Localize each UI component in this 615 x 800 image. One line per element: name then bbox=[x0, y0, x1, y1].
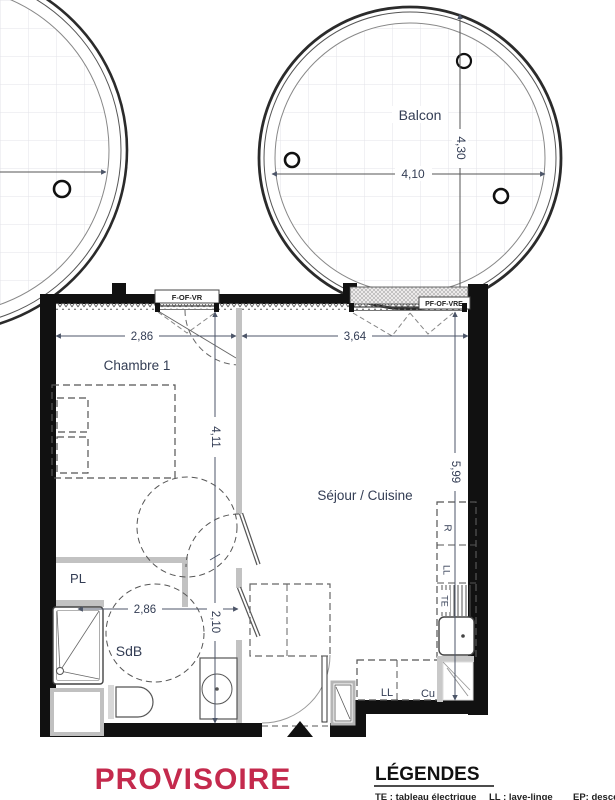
legend-item-ll: LL : lave-linge bbox=[489, 792, 553, 800]
dim-sejour-depth-label: 5,99 bbox=[449, 461, 461, 483]
washbasin bbox=[116, 687, 153, 717]
corner-unit-border-left bbox=[437, 656, 443, 702]
kitchen-sink-drain bbox=[461, 634, 465, 638]
washer-column-label: LL bbox=[442, 565, 452, 575]
partition-corridor-upper bbox=[236, 568, 242, 588]
legend-item-te: TE : tableau électrique bbox=[375, 792, 476, 800]
dimension-labels: 2,86 3,64 4,11 2,86 2,10 5,99 bbox=[125, 329, 463, 641]
balcony-width-dim-label: 4,10 bbox=[401, 167, 425, 181]
sejour-window-swing-2 bbox=[410, 313, 453, 334]
chambre-window-leaf bbox=[158, 311, 236, 358]
legend-title: LÉGENDES bbox=[375, 763, 480, 785]
jamb-mark bbox=[349, 303, 354, 312]
dimensions bbox=[56, 312, 468, 723]
sdb-turning-circle bbox=[106, 584, 204, 682]
provisoire-stamp: PROVISOIRE bbox=[95, 763, 292, 796]
corner-unit bbox=[443, 662, 473, 700]
sejour-label: Séjour / Cuisine bbox=[317, 488, 412, 503]
jamb-mark bbox=[155, 303, 160, 312]
sdb-label: SdB bbox=[116, 643, 142, 659]
fridge-label: R bbox=[441, 524, 452, 531]
chambre-door-swing-arc bbox=[185, 310, 240, 365]
nightstand-2 bbox=[57, 437, 88, 473]
entrance-door-leaf bbox=[322, 656, 327, 722]
pl-label: PL bbox=[70, 571, 86, 586]
partition-closet-bottom bbox=[56, 600, 104, 607]
top-wall-center bbox=[217, 294, 350, 304]
chambre-furniture bbox=[52, 385, 237, 577]
main-balcony: 4,10 4,30 Balcon bbox=[259, 7, 561, 309]
balcony-label: Balcon bbox=[399, 107, 442, 123]
chambre-window-label: F-OF-VR bbox=[172, 293, 203, 302]
chambre-label: Chambre 1 bbox=[104, 358, 171, 373]
washer-label: LL bbox=[381, 687, 393, 699]
jamb-mark bbox=[462, 303, 467, 312]
entrance bbox=[262, 655, 354, 737]
balcony-floor-grid bbox=[275, 23, 545, 293]
sejour-door-leaf bbox=[240, 514, 258, 565]
entry-cabinet bbox=[250, 584, 330, 656]
sejour-window: PF-OF-VRE bbox=[350, 287, 470, 336]
sdb-door-leaf bbox=[238, 588, 258, 637]
nightstand-1 bbox=[57, 398, 88, 432]
washbasin-ledge bbox=[108, 685, 114, 719]
sejour-window-label: PF-OF-VRE bbox=[425, 301, 463, 308]
partition-closet-right bbox=[182, 557, 188, 607]
kitchen-sink bbox=[439, 617, 474, 655]
balcony-post-right bbox=[494, 189, 508, 203]
balcony-height-dim-label: 4,30 bbox=[454, 136, 468, 160]
jamb-mark bbox=[214, 303, 219, 312]
bottom-wall-right bbox=[366, 700, 488, 714]
left-balcony-post bbox=[54, 181, 70, 197]
balcony-post-top bbox=[457, 54, 471, 68]
entrance-door-swing bbox=[262, 655, 330, 723]
kitchen-counter: LL Cu bbox=[357, 656, 474, 702]
shower-drain bbox=[57, 668, 64, 675]
top-wall-left bbox=[40, 294, 157, 304]
dim-chambre-width-label: 2,86 bbox=[131, 331, 153, 343]
sejour-door-leaf-2 bbox=[243, 513, 261, 564]
dim-chambre-depth-label: 4,11 bbox=[209, 426, 221, 448]
footer: PROVISOIRE LÉGENDES TE : tableau électri… bbox=[95, 763, 615, 800]
cooker-label: Cu bbox=[421, 688, 435, 700]
legend-item-ep: EP: desce bbox=[573, 792, 615, 800]
dim-sdb-depth-label: 2,10 bbox=[209, 611, 221, 633]
floor-plan-drawing: 4,10 4,30 Balcon F-OF-VR PF-OF-VRE bbox=[0, 0, 615, 800]
dim-sdb-width-label: 2,86 bbox=[134, 604, 156, 616]
balcony-post-left bbox=[285, 153, 299, 167]
partition-chambre-bottom bbox=[56, 557, 188, 563]
floor-plan-page: 4,10 4,30 Balcon F-OF-VR PF-OF-VRE bbox=[0, 0, 615, 800]
wc-bowl-center bbox=[215, 687, 219, 691]
electrical-panel-label: TE bbox=[440, 595, 450, 607]
partition-chambre-sejour bbox=[236, 308, 242, 514]
exterior-walls bbox=[40, 284, 488, 737]
chambre-window-swing bbox=[158, 312, 216, 333]
entrance-arrow bbox=[287, 721, 313, 737]
bathroom-niche bbox=[52, 690, 102, 734]
left-balcony bbox=[0, 0, 127, 332]
dim-sejour-width-label: 3,64 bbox=[344, 331, 367, 343]
entry-cabinet-outline bbox=[250, 584, 330, 656]
